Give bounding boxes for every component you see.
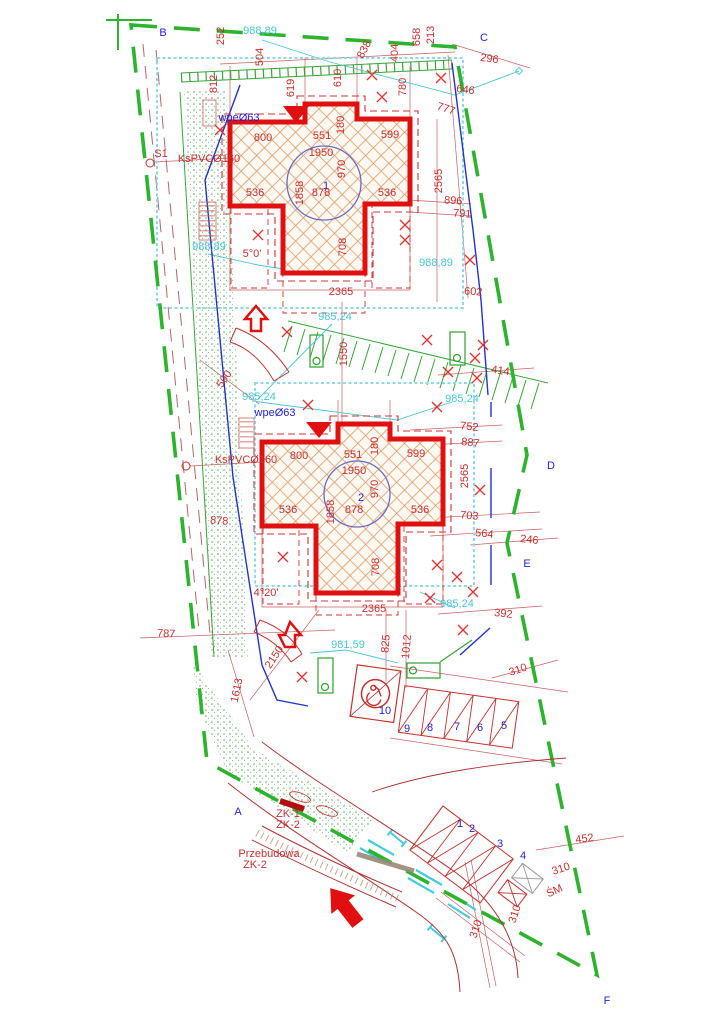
parking-row1-label: 5	[501, 720, 507, 732]
elevations-label: 985,24	[445, 393, 479, 405]
building1-label: 1858	[294, 181, 306, 205]
elevations-label: 988,89	[192, 241, 226, 253]
retaining-wedge	[230, 328, 289, 381]
lamp-circle	[454, 355, 461, 362]
annotations-label: ZK-2	[276, 819, 300, 831]
parking-row1-label: 6	[477, 722, 483, 734]
site-dimensions-label: 213	[425, 26, 437, 44]
site-dimensions-label: 392	[494, 607, 514, 621]
building2-label: 536	[279, 504, 297, 516]
elevations-label: 988,89	[243, 25, 277, 37]
site-dimensions-label: 791	[453, 207, 472, 220]
wheelchair-icon	[366, 685, 383, 707]
site-dimensions-label: 646	[455, 83, 475, 97]
building2-label: 2	[358, 492, 364, 504]
site-dimensions-label: 1550	[338, 342, 350, 366]
site-dimensions-label: 780	[397, 78, 409, 96]
rebuild-curb-pebbles	[257, 833, 399, 899]
site-dimensions-label: 2565	[459, 464, 471, 488]
site-dimensions-label: 878	[210, 514, 229, 527]
building1-label: 1950	[309, 147, 333, 159]
site-dimensions-label: 310	[550, 861, 571, 878]
slope-hatching	[284, 321, 548, 409]
driveway-curve	[372, 758, 566, 792]
building2-label: 2365	[362, 603, 386, 615]
site-dimensions-label: 564	[475, 527, 495, 541]
site-dimensions-label: 246	[520, 533, 540, 547]
letters-label: A	[234, 806, 242, 818]
building1-label: 536	[378, 187, 396, 199]
parking-row1-label: 9	[404, 723, 410, 735]
sewer-line	[146, 159, 190, 470]
entrance-arrow-main	[318, 879, 369, 933]
site-dimensions-label: 310	[507, 903, 524, 924]
disabled-space-diagonal	[350, 665, 401, 723]
site-dimensions-label: 1012	[400, 634, 414, 659]
site-dimensions-label: 658	[411, 28, 423, 46]
site-dimensions-label: 887	[461, 436, 481, 450]
building2-label: 970	[369, 480, 381, 498]
building1-label: 2365	[329, 286, 353, 298]
utilities-label: KsPVCØ160	[215, 454, 277, 466]
site-dimensions-label: 310	[468, 918, 485, 939]
building2-label: 1950	[342, 465, 366, 477]
building2-label: 878	[345, 504, 363, 516]
utilities-label: wpeØ63	[254, 407, 296, 419]
elevations-label: 985,24	[318, 311, 352, 323]
entrance-triangle-building2	[306, 422, 332, 438]
site-dimensions-label: 787	[157, 628, 176, 641]
building2-label: 708	[370, 558, 382, 576]
lamp-post	[318, 658, 333, 693]
parking-row1-label: 8	[427, 722, 433, 734]
utilities-label: wpeØ63	[218, 112, 260, 124]
lamp-circle	[313, 358, 320, 365]
green-diagonal-to-lamp	[440, 640, 472, 662]
building2-label: 1858	[325, 500, 337, 524]
parking-row2-label: 1	[457, 818, 463, 830]
elevations-label: 988,89	[419, 257, 453, 269]
parking-row2-label: 2	[469, 823, 475, 835]
site-dimensions-label: 404	[389, 44, 401, 62]
parking-row-secondary	[410, 804, 543, 924]
building2-label: 536	[411, 504, 429, 516]
building1-label: 970	[336, 160, 348, 178]
slope-angles-label: 4°20'	[254, 587, 279, 599]
site-dimensions-label: 296	[479, 52, 499, 66]
site-dimensions-label: 610	[332, 69, 344, 87]
building1-label: 599	[381, 129, 399, 141]
letters-label: E	[523, 558, 530, 570]
building1-label: 180	[335, 116, 347, 134]
annotations-label: ZK-2	[243, 859, 267, 871]
site-dimensions-label: 777	[435, 101, 456, 118]
building2-label: 551	[344, 449, 362, 461]
slope-angles-label: 5°0'	[243, 248, 262, 260]
site-dimensions-label: 2565	[433, 169, 445, 193]
manhole-s1	[146, 159, 154, 167]
utilities-label: S1	[154, 148, 167, 160]
letters-label: B	[159, 27, 166, 39]
waste-label: ŚM	[544, 881, 564, 900]
site-dimensions-label: 619	[285, 79, 297, 97]
site-dimensions-label: 414	[490, 364, 510, 378]
building2-label: 800	[290, 450, 308, 462]
hollow-arrow-up-1	[245, 306, 267, 331]
site-dimensions-label: 504	[254, 48, 266, 66]
building2-label: 599	[407, 448, 425, 460]
site-dimensions-label: 310	[507, 662, 528, 679]
elevations-label: 981,59	[331, 639, 365, 651]
building1-label: 536	[246, 187, 264, 199]
letters-label: C	[480, 32, 488, 44]
parking-row2-label: 4	[520, 850, 526, 862]
site-dimensions-label: 602	[464, 285, 483, 298]
building1-label: 878	[312, 187, 330, 199]
parking-row1-label: 10	[379, 705, 391, 717]
parking-row1-label: 7	[454, 721, 460, 733]
building1-label: 551	[313, 130, 331, 142]
letters-label: F	[604, 995, 611, 1007]
existing-pipe-grey	[357, 854, 414, 871]
lamp-circle	[410, 667, 417, 674]
survey-marker	[428, 924, 447, 942]
site-plan-sheet: BCDEAF2525048126196108384047806582132966…	[0, 0, 724, 1024]
slope-hatch-lines	[284, 321, 548, 409]
lamp-circle	[322, 684, 329, 691]
site-dimensions-label: 825	[379, 634, 393, 653]
site-dimensions-label: 752	[460, 420, 480, 434]
letters-label: D	[547, 460, 555, 472]
building1-label: 708	[337, 238, 349, 256]
site-plan-drawing: BCDEAF2525048126196108384047806582132966…	[0, 0, 724, 1024]
parking-stall-dividers	[398, 686, 518, 749]
building2-label: 180	[369, 437, 381, 455]
waste-container-cross	[512, 863, 544, 893]
site-dimensions-label: 812	[208, 75, 220, 93]
site-dimensions-label: 896	[444, 194, 463, 207]
parking-row2-label: 3	[497, 838, 503, 850]
site-dimensions-label: 452	[575, 832, 595, 846]
survey-marker	[388, 829, 407, 847]
elevations-label: 985,24	[440, 598, 474, 610]
elevations-label: 985,24	[242, 391, 276, 403]
boundary-corner-mark	[106, 14, 152, 50]
utilities-label: KsPVCØ160	[178, 153, 240, 165]
site-dimensions-label: 252	[215, 27, 227, 45]
lamp-post	[407, 663, 440, 678]
building1-label: 800	[254, 132, 272, 144]
site-dimensions-label: 703	[460, 509, 479, 523]
hollow-arrow-up-2	[279, 622, 301, 647]
